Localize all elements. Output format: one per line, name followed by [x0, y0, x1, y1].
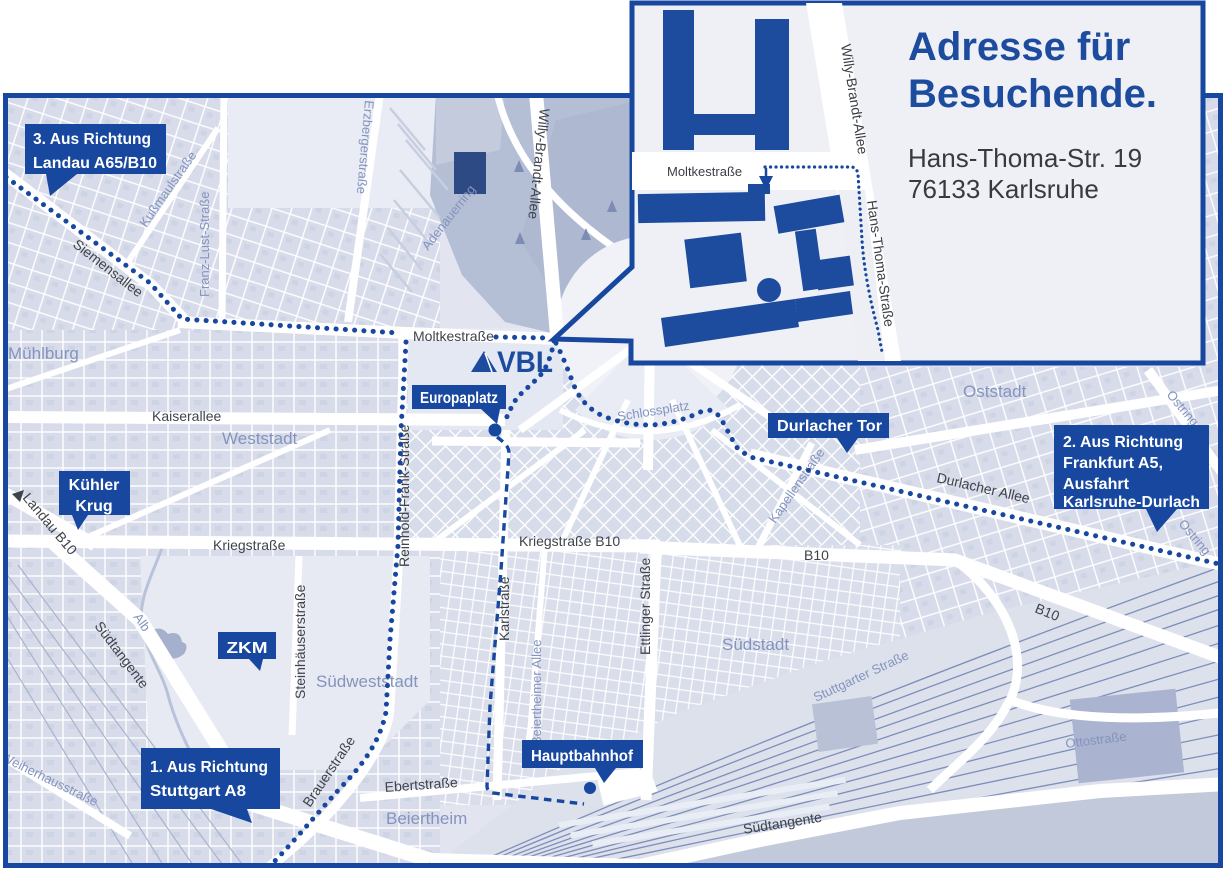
svg-text:ZKM: ZKM: [227, 640, 268, 657]
svg-text:Moltkestraße: Moltkestraße: [413, 328, 494, 344]
svg-text:Hauptbahnhof: Hauptbahnhof: [531, 748, 634, 765]
svg-text:Südstadt: Südstadt: [722, 635, 789, 654]
svg-text:B10: B10: [804, 547, 829, 563]
svg-text:Karlsruhe-Durlach: Karlsruhe-Durlach: [1063, 494, 1200, 511]
svg-text:Beiertheim: Beiertheim: [386, 809, 467, 828]
svg-text:Südweststadt: Südweststadt: [316, 672, 418, 691]
svg-text:Kriegstraße: Kriegstraße: [213, 537, 286, 553]
svg-text:Durlacher Tor: Durlacher Tor: [777, 418, 882, 435]
svg-text:Moltkestraße: Moltkestraße: [667, 164, 742, 179]
svg-text:Kühler: Kühler: [69, 477, 120, 494]
svg-text:Landau A65/B10: Landau A65/B10: [33, 155, 157, 172]
svg-text:Oststadt: Oststadt: [963, 382, 1027, 401]
svg-text:Karlstraße: Karlstraße: [496, 576, 512, 641]
svg-text:Kriegstraße B10: Kriegstraße B10: [519, 533, 620, 549]
svg-text:Besuchende.: Besuchende.: [908, 72, 1157, 116]
svg-text:Steinhäuserstraße: Steinhäuserstraße: [292, 584, 308, 699]
svg-text:Ettlinger Straße: Ettlinger Straße: [637, 558, 653, 655]
svg-text:3. Aus Richtung: 3. Aus Richtung: [33, 131, 151, 148]
svg-text:2. Aus Richtung: 2. Aus Richtung: [1063, 434, 1183, 451]
svg-text:VBL: VBL: [497, 346, 553, 379]
svg-text:Stuttgart A8: Stuttgart A8: [150, 783, 246, 800]
svg-text:Ausfahrt: Ausfahrt: [1063, 476, 1130, 493]
svg-text:1. Aus Richtung: 1. Aus Richtung: [150, 759, 268, 776]
svg-text:Krug: Krug: [75, 498, 112, 515]
svg-text:Beiertheimer Allee: Beiertheimer Allee: [529, 640, 544, 746]
svg-text:Kaiserallee: Kaiserallee: [152, 408, 221, 424]
svg-text:Weststadt: Weststadt: [222, 429, 298, 448]
svg-text:76133 Karlsruhe: 76133 Karlsruhe: [908, 174, 1099, 204]
svg-text:Adresse für: Adresse für: [908, 25, 1130, 69]
svg-text:Europaplatz: Europaplatz: [420, 390, 498, 407]
svg-text:Mühlburg: Mühlburg: [8, 344, 79, 363]
svg-text:Franz-Lust-Straße: Franz-Lust-Straße: [197, 192, 212, 297]
svg-text:Frankfurt A5,: Frankfurt A5,: [1063, 455, 1163, 472]
svg-text:Hans-Thoma-Str. 19: Hans-Thoma-Str. 19: [908, 143, 1142, 173]
